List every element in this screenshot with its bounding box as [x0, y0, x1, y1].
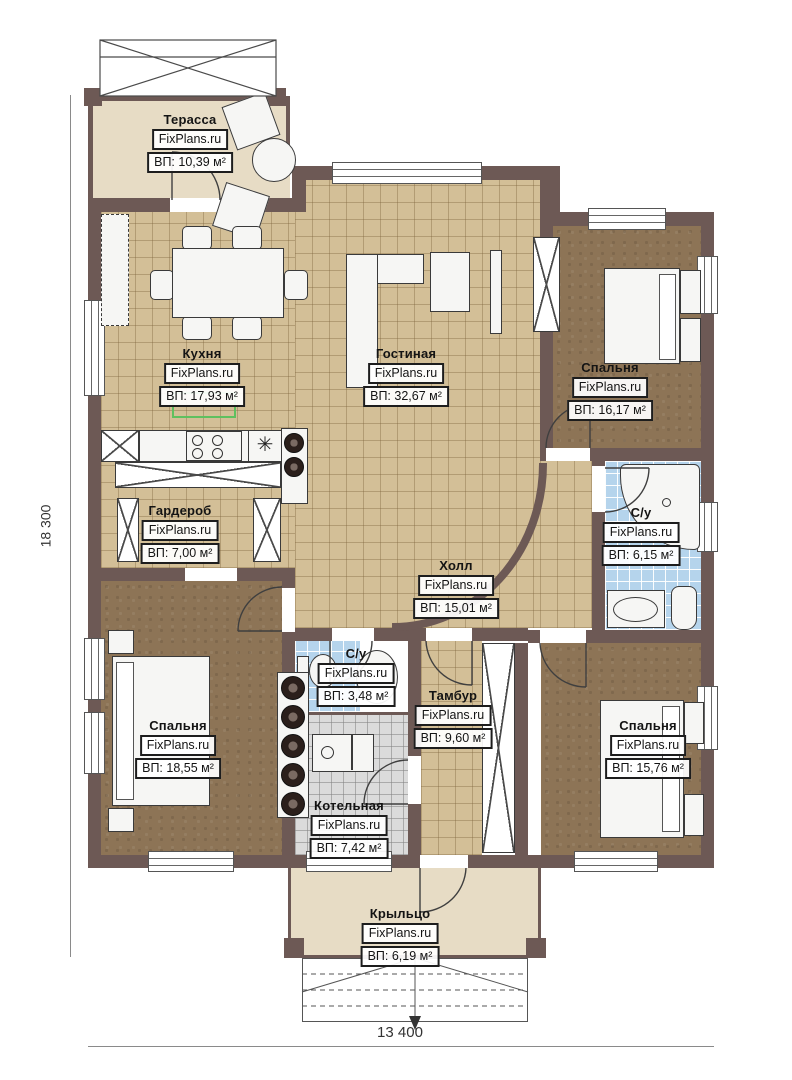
room-area: ВП: 32,67 м²: [363, 386, 449, 407]
room-name: Котельная: [314, 798, 384, 813]
door-opening-front: [420, 855, 468, 868]
dining-table: [172, 248, 284, 318]
cabinet-counter-end: [101, 430, 139, 462]
equipment-dial-icon: [281, 705, 305, 729]
room-label-bedroom-br: Спальня FixPlans.ru ВП: 15,76 м²: [605, 718, 691, 779]
room-area: ВП: 6,19 м²: [361, 946, 440, 967]
room-label-hall: Холл FixPlans.ru ВП: 15,01 м²: [413, 558, 499, 619]
pergola: [100, 40, 276, 96]
room-area: ВП: 6,15 м²: [602, 545, 681, 566]
wall-step-left: [292, 166, 306, 212]
watermark: FixPlans.ru: [318, 663, 395, 684]
room-label-living: Гостиная FixPlans.ru ВП: 32,67 м²: [363, 346, 449, 407]
watermark: FixPlans.ru: [362, 923, 439, 944]
coffee-table: [430, 252, 470, 312]
stove: [186, 431, 242, 461]
wardrobe-cabinet-band: [115, 462, 281, 488]
fridge-cabinet: [101, 214, 129, 326]
watermark: FixPlans.ru: [610, 735, 687, 756]
room-name: Спальня: [581, 360, 639, 375]
watermark: FixPlans.ru: [418, 575, 495, 596]
room-label-boiler: Котельная FixPlans.ru ВП: 7,42 м²: [310, 798, 389, 859]
room-name: Кухня: [183, 346, 222, 361]
window-living: [332, 162, 482, 184]
boiler-gauge-icon: [321, 746, 334, 759]
room-area: ВП: 7,00 м²: [141, 543, 220, 564]
wardrobe-closet-left: [117, 498, 139, 562]
terrace-rail-left: [88, 96, 93, 200]
dining-chair: [232, 226, 262, 250]
wall-hall-bottom: [282, 628, 528, 641]
dimension-width-label: 13 400: [377, 1024, 423, 1041]
room-area: ВП: 3,48 м²: [317, 686, 396, 707]
room-area: ВП: 10,39 м²: [147, 152, 233, 173]
dimension-line-width: [88, 1046, 714, 1047]
room-name: Спальня: [149, 718, 207, 733]
burner-icon: [192, 435, 203, 446]
watermark: FixPlans.ru: [164, 363, 241, 384]
room-label-wardrobe: Гардероб FixPlans.ru ВП: 7,00 м²: [141, 503, 220, 564]
dimension-height-label: 18 300: [37, 505, 53, 548]
room-name: Холл: [439, 558, 472, 573]
porch-pillar-left: [284, 938, 304, 958]
room-area: ВП: 7,42 м²: [310, 838, 389, 859]
bathroom-sink: [613, 597, 658, 622]
nightstand: [684, 794, 704, 836]
room-name: С/у: [631, 505, 652, 520]
porch-steps: [302, 958, 528, 1022]
dining-chair: [284, 270, 308, 300]
room-name: Спальня: [619, 718, 677, 733]
equipment-dial-icon: [281, 792, 305, 816]
burner-icon: [192, 448, 203, 459]
window-bedroom-bl-bottom: [148, 851, 234, 872]
watermark: FixPlans.ru: [142, 520, 219, 541]
dining-chair: [182, 226, 212, 250]
watermark: FixPlans.ru: [152, 129, 229, 150]
window-bedroom-br-bottom: [574, 851, 658, 872]
terrace-pillar-right: [268, 88, 286, 106]
watermark: FixPlans.ru: [415, 705, 492, 726]
equipment-dial-icon: [281, 763, 305, 787]
nightstand: [108, 808, 134, 832]
room-label-bath-tr: С/у FixPlans.ru ВП: 6,15 м²: [602, 505, 681, 566]
door-opening-bedroom-bl: [282, 588, 295, 632]
room-label-vestibule: Тамбур FixPlans.ru ВП: 9,60 м²: [414, 688, 493, 749]
burner-icon: [212, 435, 223, 446]
wardrobe-closet-right: [253, 498, 281, 562]
window-bath-tr: [697, 502, 718, 552]
dining-chair: [232, 316, 262, 340]
tv-stand: [490, 250, 502, 334]
kitchen-sink: ✳: [248, 430, 282, 462]
dimension-line-height: [70, 95, 71, 957]
boiler-unit: [312, 734, 374, 772]
hall-right-floor: [540, 461, 592, 628]
door-opening-bath-small: [332, 628, 374, 641]
door-opening-wardrobe: [185, 568, 237, 581]
terrace-table: [252, 138, 296, 182]
door-opening-terrace: [170, 198, 220, 212]
room-label-terrace: Терасса FixPlans.ru ВП: 10,39 м²: [147, 112, 233, 173]
room-label-bedroom-tr: Спальня FixPlans.ru ВП: 16,17 м²: [567, 360, 653, 421]
window-bedroom-tr-top: [588, 208, 666, 230]
oven-icon: [284, 433, 304, 453]
wall-shaft-right: [515, 643, 528, 855]
window-bedroom-bl-1: [84, 638, 105, 700]
door-opening-vestibule: [426, 628, 472, 641]
room-name: Терасса: [164, 112, 217, 127]
microwave-icon: [284, 457, 304, 477]
wall-bath-boiler: [295, 712, 408, 715]
nightstand: [680, 318, 701, 362]
equipment-dial-icon: [281, 676, 305, 700]
door-opening-boiler: [408, 756, 421, 804]
window-bedroom-bl-2: [84, 712, 105, 774]
room-name: Гардероб: [148, 503, 211, 518]
room-name: Крыльцо: [370, 906, 431, 921]
room-area: ВП: 18,55 м²: [135, 758, 221, 779]
nightstand: [680, 270, 701, 314]
dining-chair: [182, 316, 212, 340]
wall-pier: [533, 237, 560, 332]
burner-icon: [212, 448, 223, 459]
door-opening-bedroom-tr: [546, 448, 590, 461]
nightstand: [108, 630, 134, 654]
room-name: Тамбур: [429, 688, 477, 703]
bed: [604, 268, 680, 364]
watermark: FixPlans.ru: [311, 815, 388, 836]
room-label-bath-small: С/у FixPlans.ru ВП: 3,48 м²: [317, 646, 396, 707]
room-area: ВП: 15,76 м²: [605, 758, 691, 779]
boiler-divider: [351, 735, 353, 770]
room-label-kitchen: Кухня FixPlans.ru ВП: 17,93 м²: [159, 346, 245, 407]
room-area: ВП: 17,93 м²: [159, 386, 245, 407]
room-name: С/у: [346, 646, 367, 661]
watermark: FixPlans.ru: [603, 522, 680, 543]
floor-plan: ✳: [0, 0, 792, 1080]
room-area: ВП: 15,01 м²: [413, 598, 499, 619]
room-label-porch: Крыльцо FixPlans.ru ВП: 6,19 м²: [361, 906, 440, 967]
watermark: FixPlans.ru: [572, 377, 649, 398]
watermark: FixPlans.ru: [140, 735, 217, 756]
porch-pillar-right: [526, 938, 546, 958]
terrace-pillar-left: [84, 88, 102, 106]
room-label-bedroom-bl: Спальня FixPlans.ru ВП: 18,55 м²: [135, 718, 221, 779]
equipment-dial-icon: [281, 734, 305, 758]
dining-chair: [150, 270, 174, 300]
room-area: ВП: 9,60 м²: [414, 728, 493, 749]
door-opening-bedroom-br: [540, 630, 586, 643]
room-name: Гостиная: [376, 346, 436, 361]
room-area: ВП: 16,17 м²: [567, 400, 653, 421]
toilet: [671, 586, 697, 630]
watermark: FixPlans.ru: [368, 363, 445, 384]
